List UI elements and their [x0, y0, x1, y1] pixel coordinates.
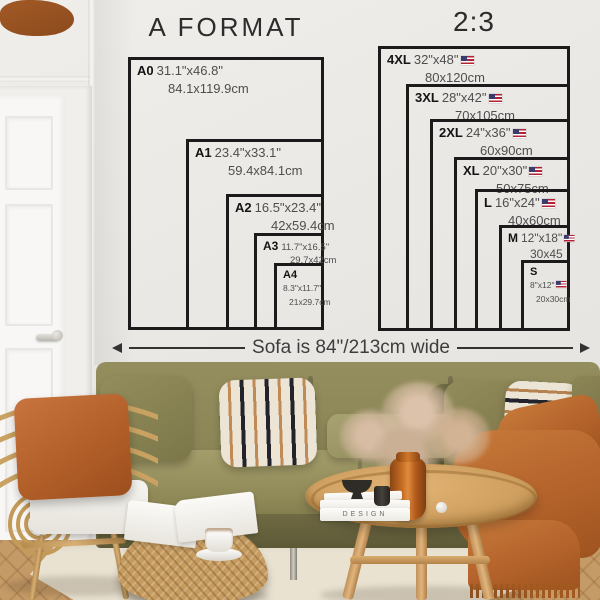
striped-pillow [219, 377, 318, 467]
living-room-scene: A FORMAT 2:3 A031.1"x46.8" 84.1x119.9cm … [0, 0, 600, 600]
size-inches: 12"x18" [521, 231, 562, 245]
size-label: XL [463, 163, 480, 178]
size-cm: 60x90cm [474, 141, 567, 159]
size-label: 3XL [415, 90, 439, 105]
size-cm: 21x29.7cm [283, 295, 321, 308]
sofa-leg [290, 546, 297, 580]
size-box-s: S8"x12" 20x30cm [521, 260, 570, 331]
sofa-width-label: Sofa is 84"/213cm wide [252, 337, 450, 359]
size-inches: 8"x12" [530, 280, 554, 290]
size-inches: 28"x42" [442, 90, 487, 105]
size-inches: 16"x24" [495, 195, 540, 210]
size-cm: 42x59.4cm [265, 216, 321, 234]
ratio-title: 2:3 [378, 6, 570, 38]
arrow-left-icon [112, 343, 122, 353]
book-spine-text: DESIGN [343, 511, 388, 518]
size-box-a4: A48.3"x11.7" 21x29.7cm [274, 263, 324, 330]
door-panel [5, 204, 53, 326]
coffee-cup [205, 528, 233, 552]
sofa-width-dimension: Sofa is 84"/213cm wide [112, 338, 590, 358]
size-label: 4XL [387, 52, 411, 67]
design-book: DESIGN [320, 508, 410, 521]
size-label: A1 [195, 145, 212, 160]
size-label: A3 [263, 239, 278, 253]
rust-pillow [13, 393, 132, 501]
size-inches: 31.1"x46.8" [157, 63, 223, 78]
throw-on-floor [0, 0, 74, 36]
size-inches: 23.4"x33.1" [215, 145, 281, 160]
door-handle-rosette [52, 330, 63, 341]
black-cup [374, 486, 390, 506]
size-label: S [530, 266, 561, 279]
size-label: L [484, 195, 492, 210]
size-inches: 8.3"x11.7" [283, 283, 321, 293]
size-inches: 32"x48" [414, 52, 459, 67]
arrow-right-icon [580, 343, 590, 353]
size-label: A0 [137, 63, 154, 78]
size-inches: 24"x36" [466, 125, 511, 140]
size-label: A4 [283, 269, 315, 282]
us-flag-icon [461, 56, 474, 65]
us-flag-icon [513, 129, 526, 138]
decor-ball [436, 502, 447, 513]
table-stretcher [350, 556, 490, 564]
vase-neck [396, 452, 420, 462]
size-label: A2 [235, 200, 252, 215]
size-inches: 20"x30" [483, 163, 528, 178]
size-cm: 80x120cm [419, 68, 567, 86]
size-label: 2XL [439, 125, 463, 140]
wall-molding [0, 76, 90, 82]
us-flag-icon [489, 94, 502, 103]
us-flag-icon [542, 199, 555, 208]
book-stack: DESIGN [320, 492, 410, 522]
us-flag-icon [529, 167, 542, 176]
size-inches: 11.7"x16.5" [281, 242, 329, 253]
size-cm: 20x30cm [530, 292, 567, 305]
a-format-title: A FORMAT [120, 12, 332, 43]
door-panel [5, 116, 53, 190]
size-cm: 59.4x84.1cm [222, 161, 321, 179]
size-inches: 16.5"x23.4" [255, 200, 321, 215]
size-cm: 84.1x119.9cm [162, 79, 321, 97]
size-label: M [508, 231, 518, 245]
us-flag-icon [564, 235, 574, 242]
us-flag-icon [556, 281, 566, 288]
